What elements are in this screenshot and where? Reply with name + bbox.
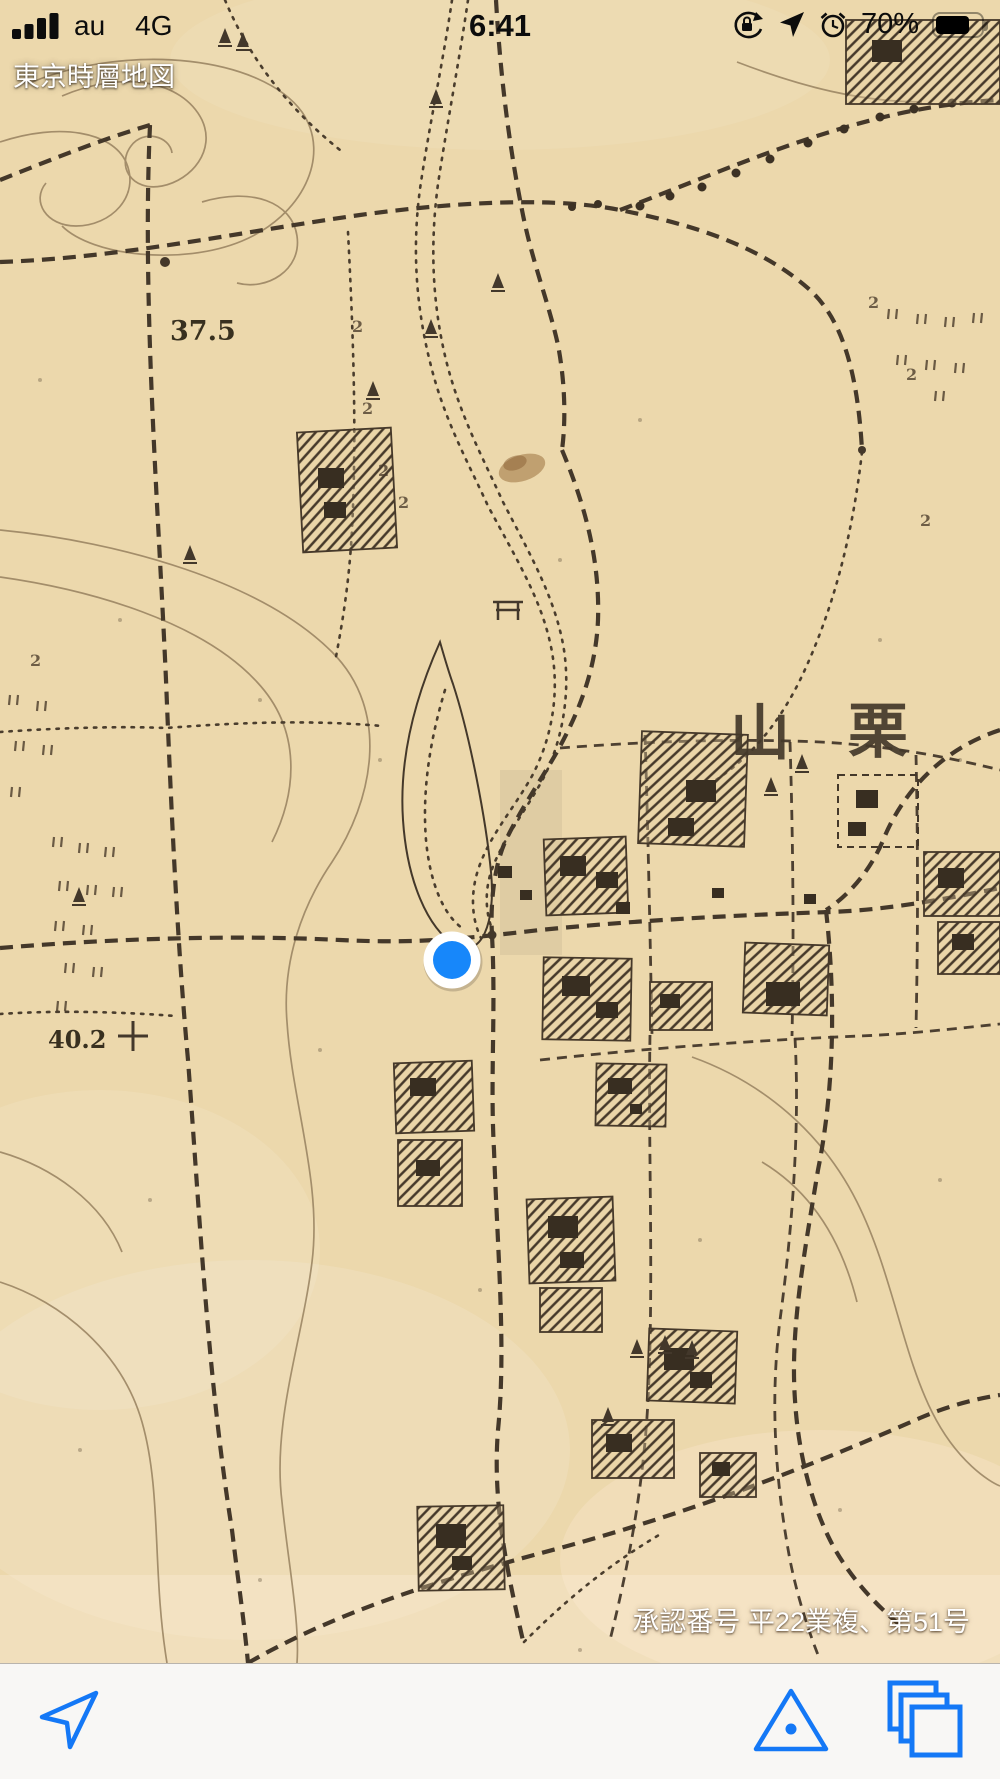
signal-strength-icon: [12, 11, 62, 41]
place-name-char-right: 栗: [848, 697, 908, 767]
network-type-label: 4G: [135, 10, 172, 42]
field-mark: 2: [378, 461, 389, 480]
triangulation-point-button[interactable]: [752, 1686, 830, 1757]
elevation-label-b: 40.2: [48, 1025, 106, 1054]
field-mark: 2: [868, 293, 879, 312]
field-mark: 2: [906, 365, 917, 384]
layers-button[interactable]: [886, 1679, 964, 1764]
field-mark: 2: [920, 511, 931, 530]
map-approval-number: 承認番号 平22業複、第51号: [632, 1600, 970, 1639]
clock-label: 6:41: [469, 8, 531, 44]
battery-icon: [932, 12, 984, 38]
orientation-lock-icon: [729, 9, 765, 41]
elevation-label-a: 37.5: [170, 316, 236, 347]
field-mark: 2: [352, 317, 363, 336]
field-mark: 2: [398, 493, 409, 512]
stacked-squares-icon: [886, 1679, 964, 1761]
carrier-label: au: [74, 10, 105, 42]
alarm-clock-icon: [818, 10, 848, 40]
location-services-icon: [778, 11, 805, 38]
battery-percent-label: 70%: [861, 8, 919, 41]
historical-map[interactable]: 2 2 2 2 2 2 2 2 37.5 40.2 山 栗: [0, 0, 1000, 1663]
map-viewport[interactable]: 2 2 2 2 2 2 2 2 37.5 40.2 山 栗: [0, 0, 1000, 1663]
location-arrow-button[interactable]: [36, 1689, 102, 1754]
place-name-char-left: 山: [730, 699, 790, 769]
field-mark: 2: [362, 399, 373, 418]
bottom-toolbar: [0, 1663, 1000, 1779]
location-arrow-icon: [36, 1689, 102, 1751]
phone-screen: 2 2 2 2 2 2 2 2 37.5 40.2 山 栗: [0, 0, 1000, 1779]
triangle-dot-icon: [752, 1686, 830, 1754]
field-mark: 2: [30, 651, 41, 670]
app-title: 東京時層地図: [13, 55, 175, 94]
status-bar: au 4G 6:41 70%: [0, 0, 1000, 48]
